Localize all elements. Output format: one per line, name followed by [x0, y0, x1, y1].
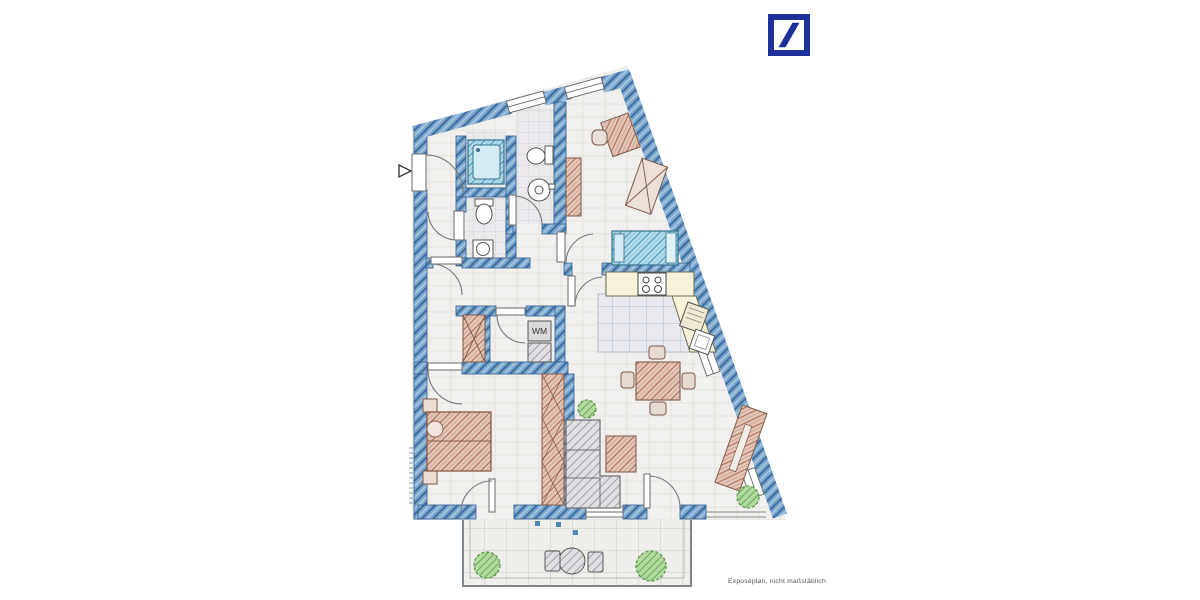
balcony [463, 519, 691, 586]
single-bed [612, 231, 678, 265]
bath2-faucet [549, 184, 555, 189]
washing-machine-label: WM [532, 326, 547, 336]
toilet2-tank [545, 146, 553, 164]
balcony-fitting-1 [535, 521, 540, 526]
bed-pillow [614, 234, 624, 262]
bed-pillow-round [427, 421, 443, 437]
shower-drain [476, 148, 480, 152]
nightstand-2 [423, 471, 437, 484]
bed-footboard [666, 233, 676, 263]
apartment: WM [399, 66, 786, 520]
dryer [528, 343, 551, 362]
floor-plan-graphic: WM Exposéplan, nicht maßstäblich [0, 0, 1200, 600]
wc-sink-basin [477, 243, 490, 256]
bedroom-wardrobe-strip [542, 374, 564, 505]
coffee-table [606, 436, 636, 472]
nightstand-1 [423, 399, 437, 412]
dining-chair-bottom [650, 402, 666, 415]
shelf-unit [566, 158, 581, 216]
dining-chair-top [649, 346, 665, 359]
plant-living-1 [578, 400, 596, 418]
plant-balcony-left [474, 552, 500, 578]
plant-balcony-right [636, 551, 666, 581]
balcony-chair-right [588, 552, 603, 572]
balcony-round-table [559, 548, 585, 574]
entrance-arrow-icon [399, 165, 411, 177]
dining-chair-left [621, 372, 634, 388]
shower-room [468, 140, 504, 184]
balcony-fitting-3 [573, 530, 578, 535]
bath2-sink-drain [535, 186, 543, 194]
balcony-chair-left [545, 551, 560, 571]
dining-table [636, 362, 680, 400]
plan-caption: Exposéplan, nicht maßstäblich [728, 578, 826, 585]
screenshot-canvas: WM Exposéplan, nicht maßstäblich [0, 0, 1200, 600]
toilet2-bowl [527, 148, 545, 164]
toilet-bowl [476, 204, 492, 224]
dining-chair-right [682, 373, 695, 389]
plant-living-2 [737, 486, 759, 508]
deutsche-bank-logo-icon [771, 17, 807, 53]
stove [638, 273, 666, 295]
balcony-fitting-2 [556, 522, 561, 527]
entrance-door-leaf [412, 154, 426, 191]
desk-chair [592, 130, 607, 145]
